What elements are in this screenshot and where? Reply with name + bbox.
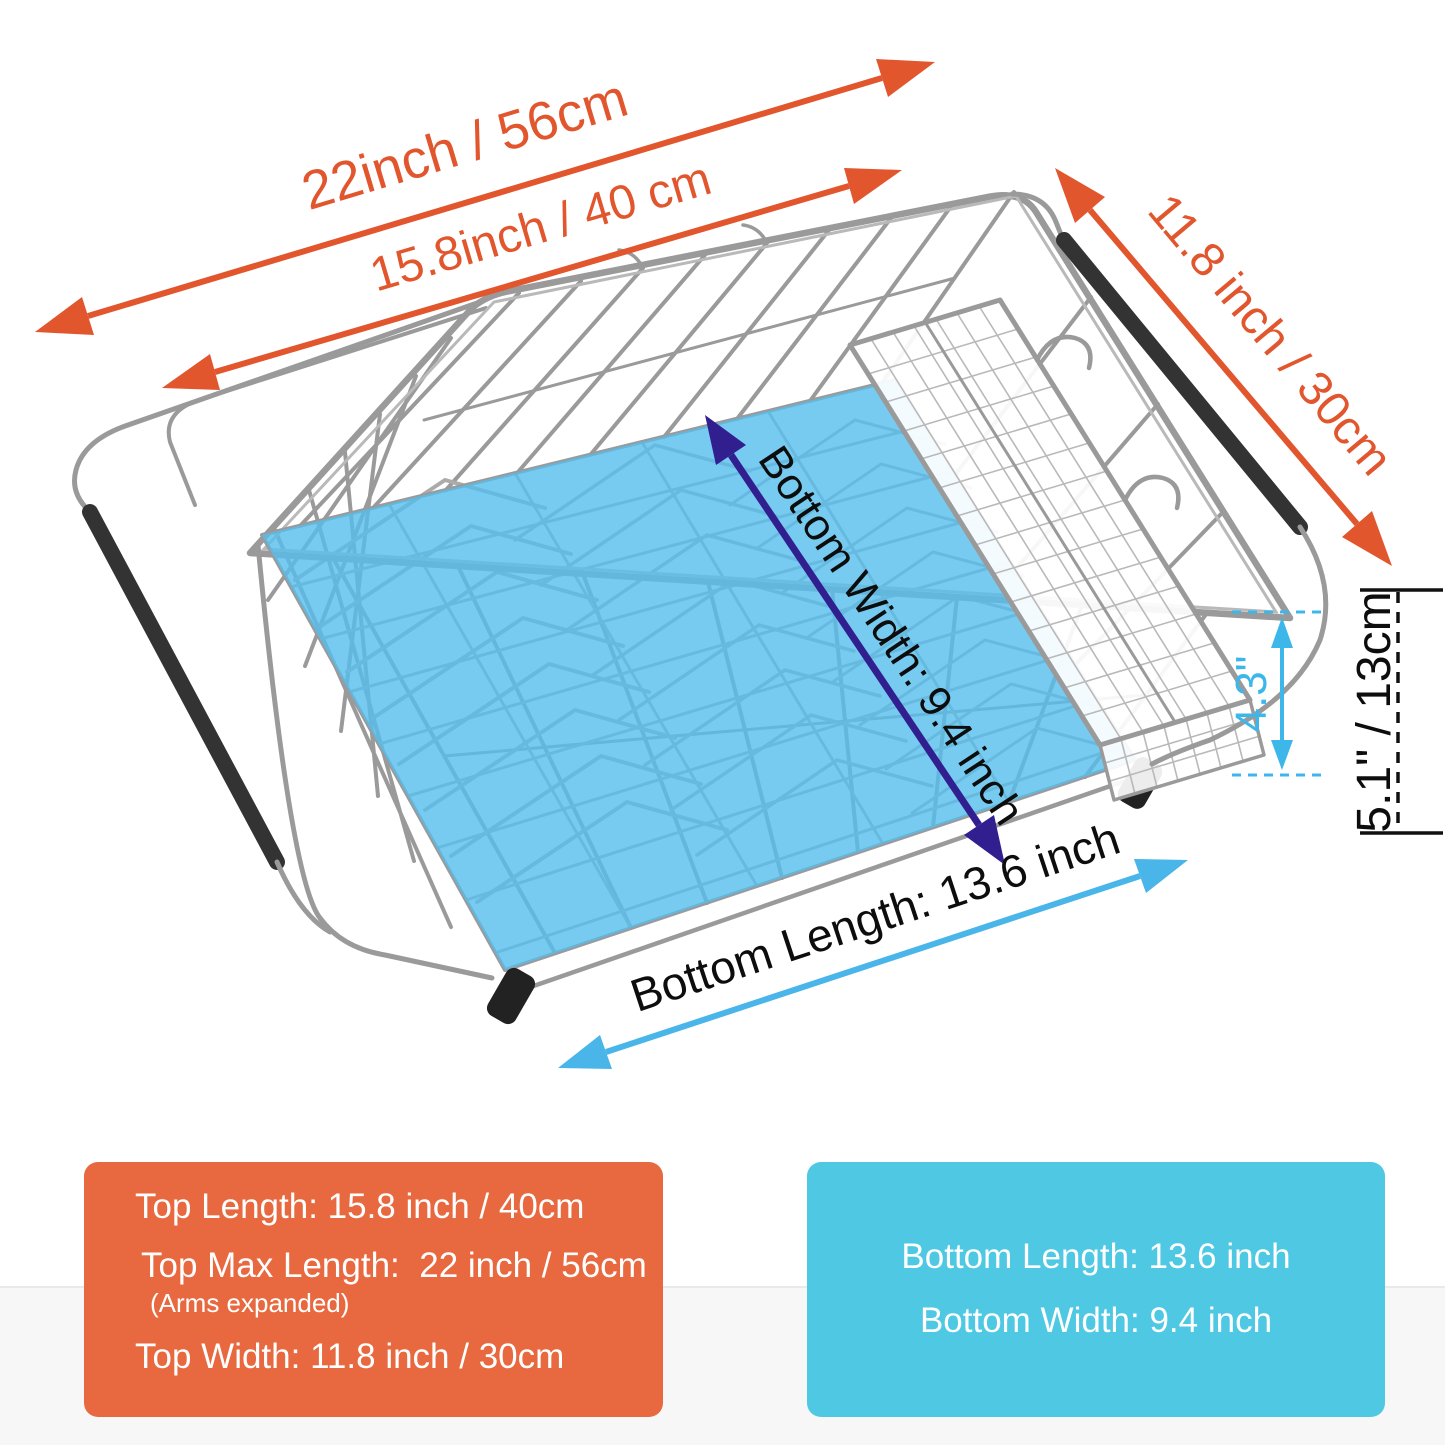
- bottom-dimensions-box: Bottom Length: 13.6 inch Bottom Width: 9…: [807, 1162, 1385, 1417]
- arrow-head-icon: [162, 354, 220, 390]
- left-arm-rail: [75, 302, 481, 510]
- arrow-head-icon: [844, 168, 902, 204]
- diagram-stage: 22inch / 56cm 15.8inch / 40 cm 11.8 inch…: [0, 0, 1445, 1445]
- bottom-width-line: Bottom Width: 9.4 inch: [807, 1301, 1385, 1341]
- label-overall-height: 5.1" / 13cm: [1348, 591, 1401, 832]
- top-max-length-line: Top Max Length: 22 inch / 56cm: [141, 1246, 647, 1286]
- overall-height-dimension: 5.1" / 13cm: [1348, 590, 1443, 833]
- top-length-line: Top Length: 15.8 inch / 40cm: [135, 1187, 584, 1227]
- arrow-head-icon: [558, 1035, 612, 1069]
- arrow-head-icon: [1271, 740, 1293, 770]
- front-left-foot: [484, 965, 539, 1028]
- arms-expanded-note: (Arms expanded): [150, 1288, 349, 1319]
- label-basket-depth: 4.3": [1227, 656, 1276, 733]
- arrow-head-icon: [1271, 617, 1293, 648]
- dish-rack-illustration: [75, 192, 1326, 1027]
- top-length-dimension: 15.8inch / 40 cm: [162, 152, 902, 390]
- arrow-head-icon: [876, 59, 935, 97]
- arrow-head-icon: [35, 297, 94, 335]
- top-width-line: Top Width: 11.8 inch / 30cm: [135, 1337, 564, 1377]
- arrow-head-icon: [1134, 859, 1188, 893]
- bottom-length-line: Bottom Length: 13.6 inch: [807, 1237, 1385, 1277]
- top-dimensions-box: Top Length: 15.8 inch / 40cm Top Max Len…: [84, 1162, 663, 1417]
- left-arm-grip: [90, 512, 277, 862]
